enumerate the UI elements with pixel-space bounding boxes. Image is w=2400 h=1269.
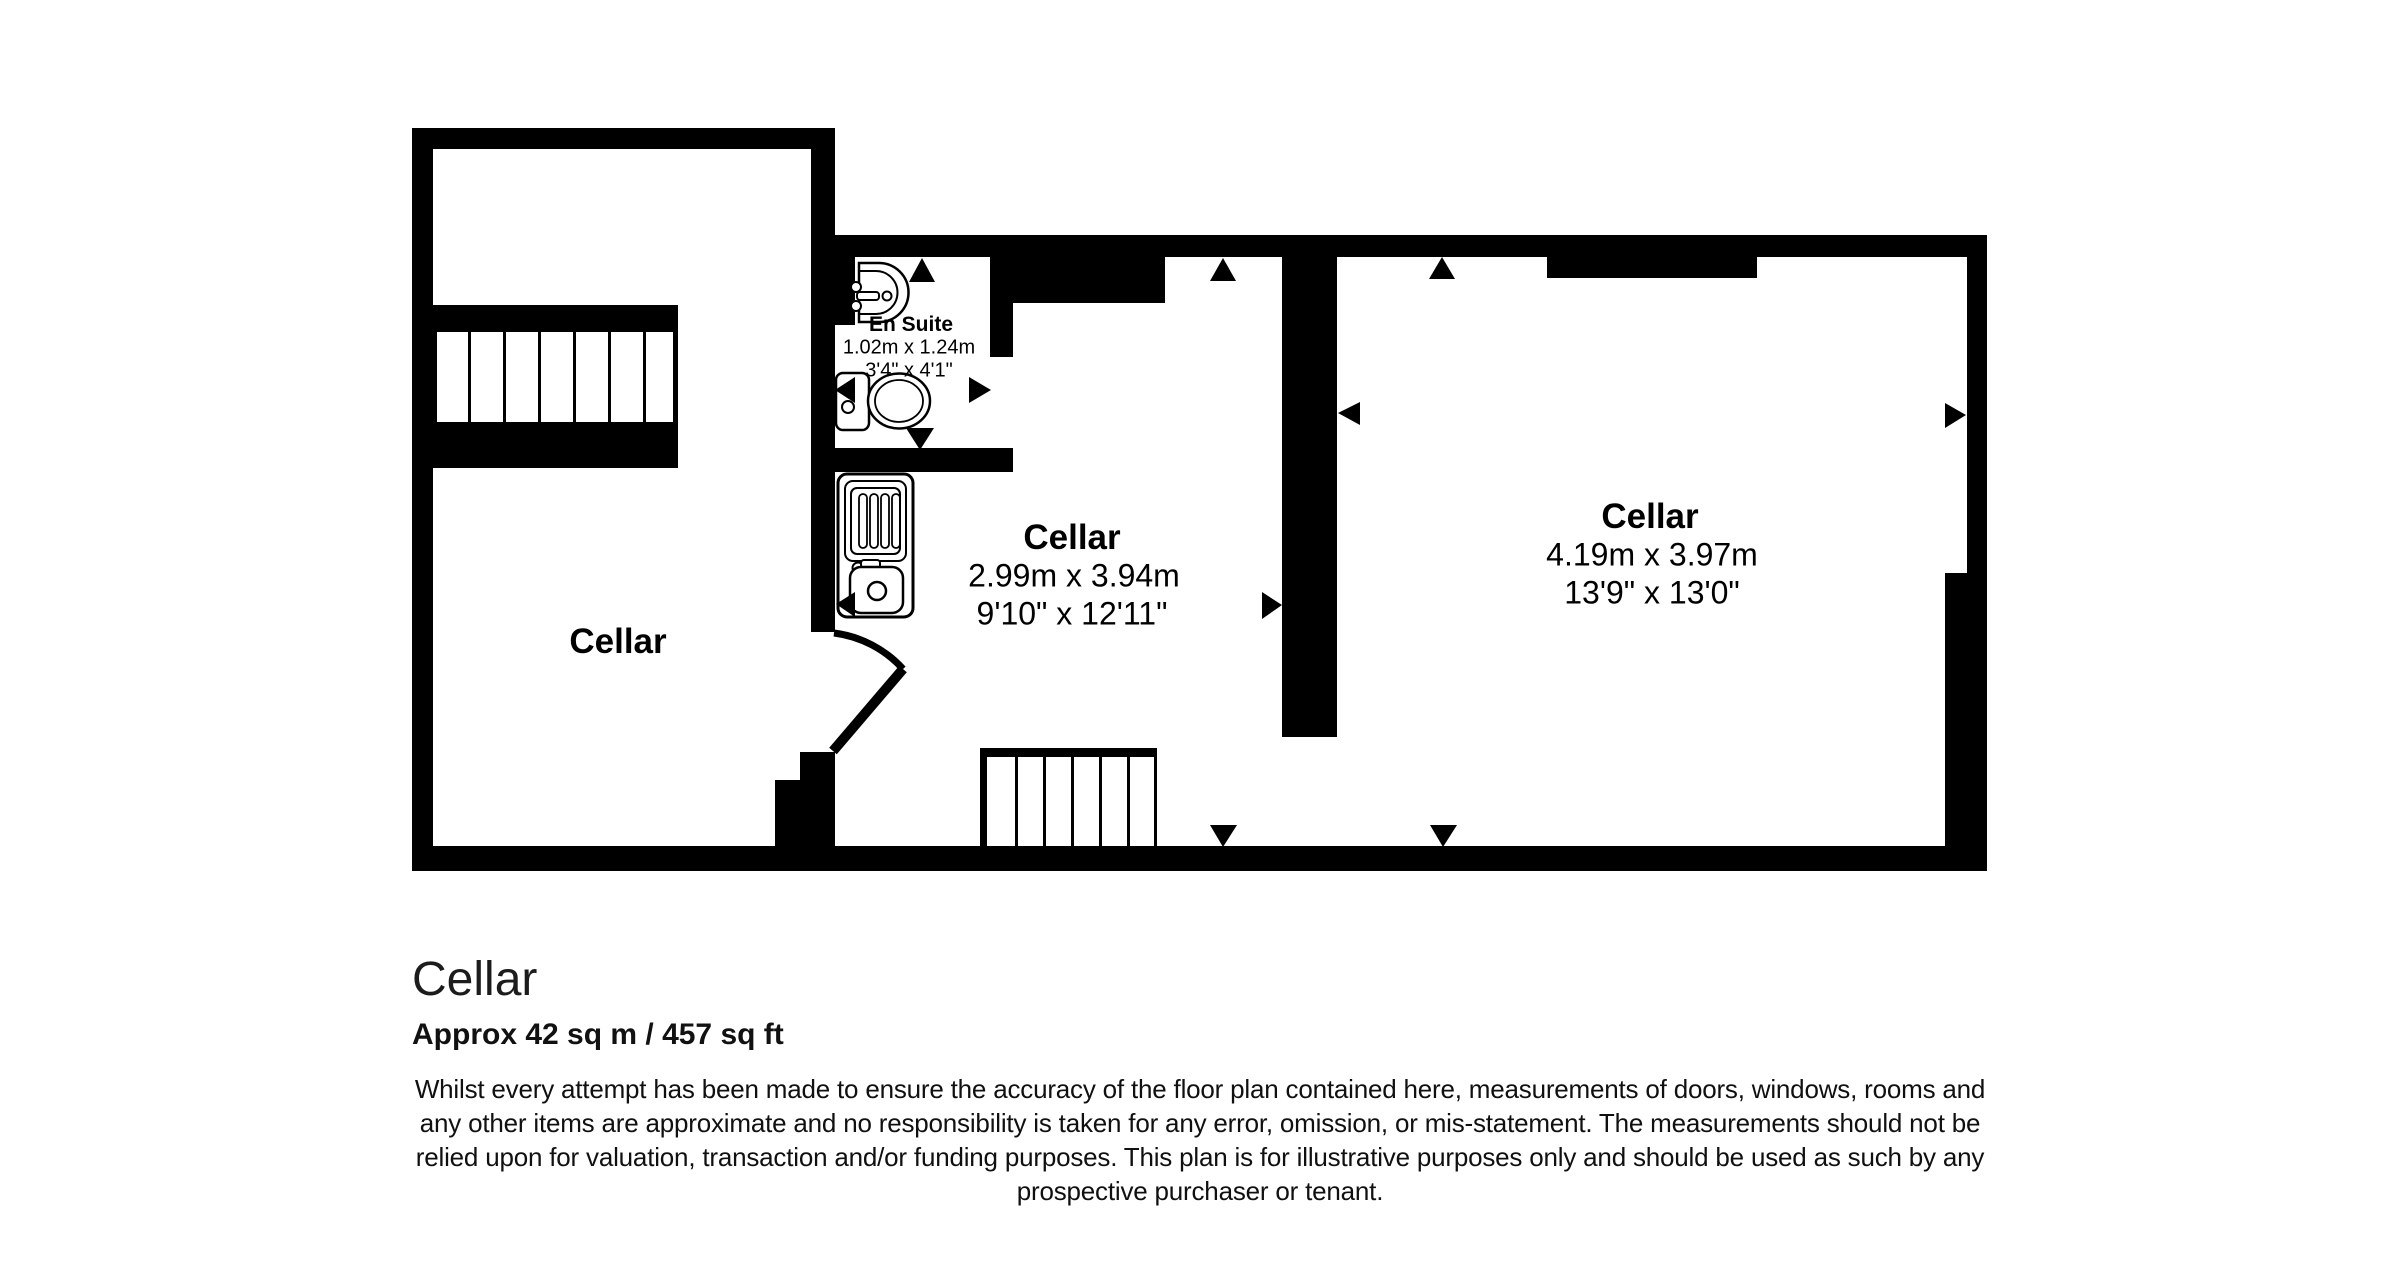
arrow-up-icon — [1429, 257, 1455, 279]
room-dim-imperial: 9'10" x 12'11" — [977, 596, 1168, 633]
wall-bottom-outer — [412, 846, 1987, 871]
staircase-lower-icon — [980, 748, 1157, 846]
wall-left-outer — [412, 128, 433, 871]
room-dim-imperial: 3'4" x 4'1" — [865, 360, 952, 383]
disclaimer-line: prospective purchaser or tenant. — [0, 1174, 2400, 1208]
wall-ensuite-bottom — [835, 448, 1013, 472]
room-dim-imperial: 13'9" x 13'0" — [1564, 575, 1740, 612]
room-label-middle-cellar: Cellar — [1023, 518, 1120, 558]
wall-right-pilaster — [1945, 573, 1987, 871]
wall-ensuite-header — [990, 257, 1165, 303]
door-swing-icon — [833, 633, 903, 751]
plan-title: Cellar — [412, 952, 537, 1007]
arrow-right-icon — [1945, 403, 1966, 428]
disclaimer-text: Whilst every attempt has been made to en… — [0, 1072, 2400, 1208]
wall-top-left-room — [412, 128, 835, 149]
room-label-ensuite: En Suite — [869, 313, 953, 337]
wall-ensuite-right — [990, 257, 1013, 357]
walls — [412, 128, 1987, 871]
wall-mid-right-divider — [1282, 257, 1337, 737]
arrow-right-icon — [969, 377, 991, 403]
room-label-right-cellar: Cellar — [1601, 497, 1698, 537]
arrow-down-icon — [906, 428, 934, 450]
arrow-down-icon — [1430, 825, 1457, 847]
wall-rightroom-top-thick — [1547, 257, 1757, 278]
plan-area: Approx 42 sq m / 457 sq ft — [412, 1018, 784, 1052]
disclaimer-line: Whilst every attempt has been made to en… — [0, 1072, 2400, 1106]
arrow-up-icon — [909, 258, 935, 282]
floorplan-page: Cellar Cellar 2.99m x 3.94m 9'10" x 12'1… — [0, 0, 2400, 1269]
room-dim-metric: 2.99m x 3.94m — [968, 558, 1180, 595]
arrow-down-icon — [1210, 825, 1237, 847]
arrow-up-icon — [1210, 258, 1236, 281]
wall-leftroom-right — [811, 128, 835, 632]
wall-door-pillar — [775, 780, 835, 848]
arrow-left-icon — [1338, 402, 1360, 425]
room-dim-metric: 4.19m x 3.97m — [1546, 537, 1758, 574]
staircase-upper-icon — [433, 305, 678, 468]
disclaimer-line: any other items are approximate and no r… — [0, 1106, 2400, 1140]
arrow-right-icon — [1262, 592, 1282, 619]
kitchen-sink-icon — [838, 474, 913, 617]
wall-top-right-section — [835, 235, 1987, 257]
room-label-left-cellar: Cellar — [569, 622, 666, 662]
room-dim-metric: 1.02m x 1.24m — [843, 337, 975, 360]
disclaimer-line: relied upon for valuation, transaction a… — [0, 1140, 2400, 1174]
wall-door-stub — [800, 752, 835, 780]
